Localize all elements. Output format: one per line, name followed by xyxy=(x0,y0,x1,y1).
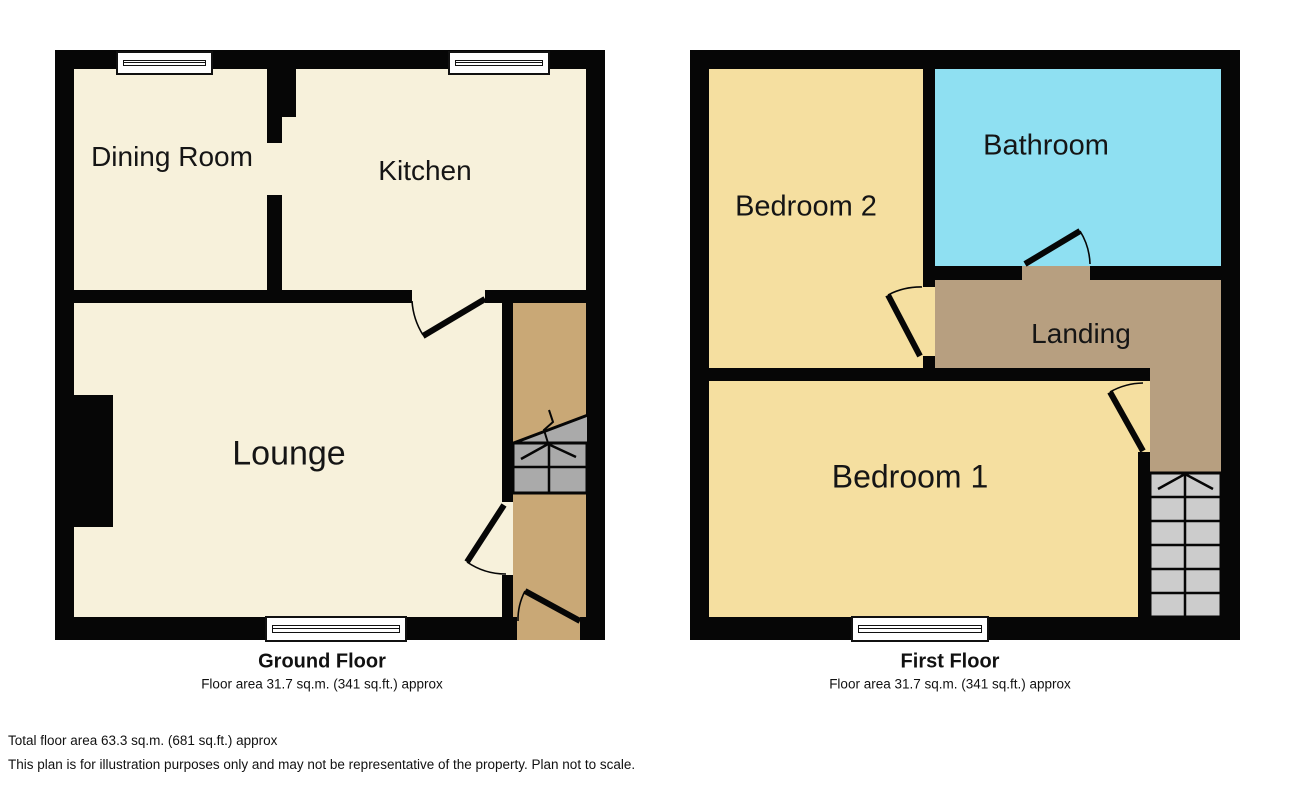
bedroom1-door-opening xyxy=(1138,381,1150,452)
first-floor-title: First Floor xyxy=(901,651,1000,674)
bathroom-south-wall-right xyxy=(1090,266,1221,280)
bathroom-label: Bathroom xyxy=(983,130,1109,163)
ff-outer-wall-left xyxy=(690,50,709,640)
lounge-door-opening xyxy=(502,502,513,575)
bedroom2-door-opening xyxy=(923,287,935,356)
bathroom-south-wall-left xyxy=(923,266,1022,280)
kitchen-window xyxy=(448,51,550,75)
bathroom-door-opening xyxy=(1022,266,1090,280)
gf-outer-wall-right xyxy=(586,50,605,640)
hallway-wall-lower xyxy=(502,575,513,617)
dining-kitchen-wall-lower xyxy=(267,195,282,290)
dining-window xyxy=(116,51,213,75)
ff-outer-wall-top xyxy=(690,50,1240,69)
ground-floor-title: Ground Floor xyxy=(258,651,386,674)
ff-stairs-steps xyxy=(1150,473,1221,617)
hallway-floor xyxy=(513,303,587,617)
bedroom1-floor xyxy=(709,381,1138,617)
dining-kitchen-floor xyxy=(74,69,587,290)
bedroom1-north-wall xyxy=(690,368,1150,381)
gf-outer-wall-left xyxy=(55,50,74,640)
total-floor-area-note: Total floor area 63.3 sq.m. (681 sq.ft.)… xyxy=(8,733,277,748)
ground-floor-area-note: Floor area 31.7 sq.m. (341 sq.ft.) appro… xyxy=(201,677,443,692)
ff-outer-wall-right xyxy=(1221,50,1240,640)
lounge-north-wall-left xyxy=(55,290,412,303)
bedroom1-window-glass xyxy=(858,625,982,633)
disclaimer-note: This plan is for illustration purposes o… xyxy=(8,757,635,772)
bedroom2-landing-wall-stub-top xyxy=(923,280,935,287)
kitchen-window-glass xyxy=(455,60,543,66)
bedroom2-landing-wall-stub-bottom xyxy=(923,356,935,368)
lounge-window-glass xyxy=(272,625,400,633)
bedroom1-east-wall xyxy=(1138,452,1150,617)
dining-room-label: Dining Room xyxy=(91,141,253,173)
dining-kitchen-wall-upper xyxy=(267,69,282,143)
lounge-label: Lounge xyxy=(232,435,345,474)
dining-kitchen-wall-stub xyxy=(282,69,296,117)
front-door-opening xyxy=(517,617,580,640)
lounge-window xyxy=(265,616,407,642)
kitchen-door-opening xyxy=(412,290,485,303)
landing-corridor-floor xyxy=(1150,368,1221,473)
kitchen-label: Kitchen xyxy=(378,155,471,187)
landing-label: Landing xyxy=(1031,318,1131,350)
bedroom1-window xyxy=(851,616,989,642)
hallway-wall-upper xyxy=(502,303,513,502)
first-floor-area-note: Floor area 31.7 sq.m. (341 sq.ft.) appro… xyxy=(829,677,1071,692)
bathroom-floor xyxy=(935,69,1221,266)
dining-window-glass xyxy=(123,60,206,66)
floorplan-canvas: Dining Room Kitchen Lounge Bedroom 2 Bat… xyxy=(0,0,1295,800)
ff-stairs-direction-arrow xyxy=(1158,474,1213,489)
bedroom2-bathroom-wall xyxy=(923,69,935,266)
bedroom2-label: Bedroom 2 xyxy=(735,191,877,224)
lounge-north-wall-right xyxy=(485,290,605,303)
chimney-breast xyxy=(68,395,113,527)
bedroom1-label: Bedroom 1 xyxy=(832,459,989,496)
